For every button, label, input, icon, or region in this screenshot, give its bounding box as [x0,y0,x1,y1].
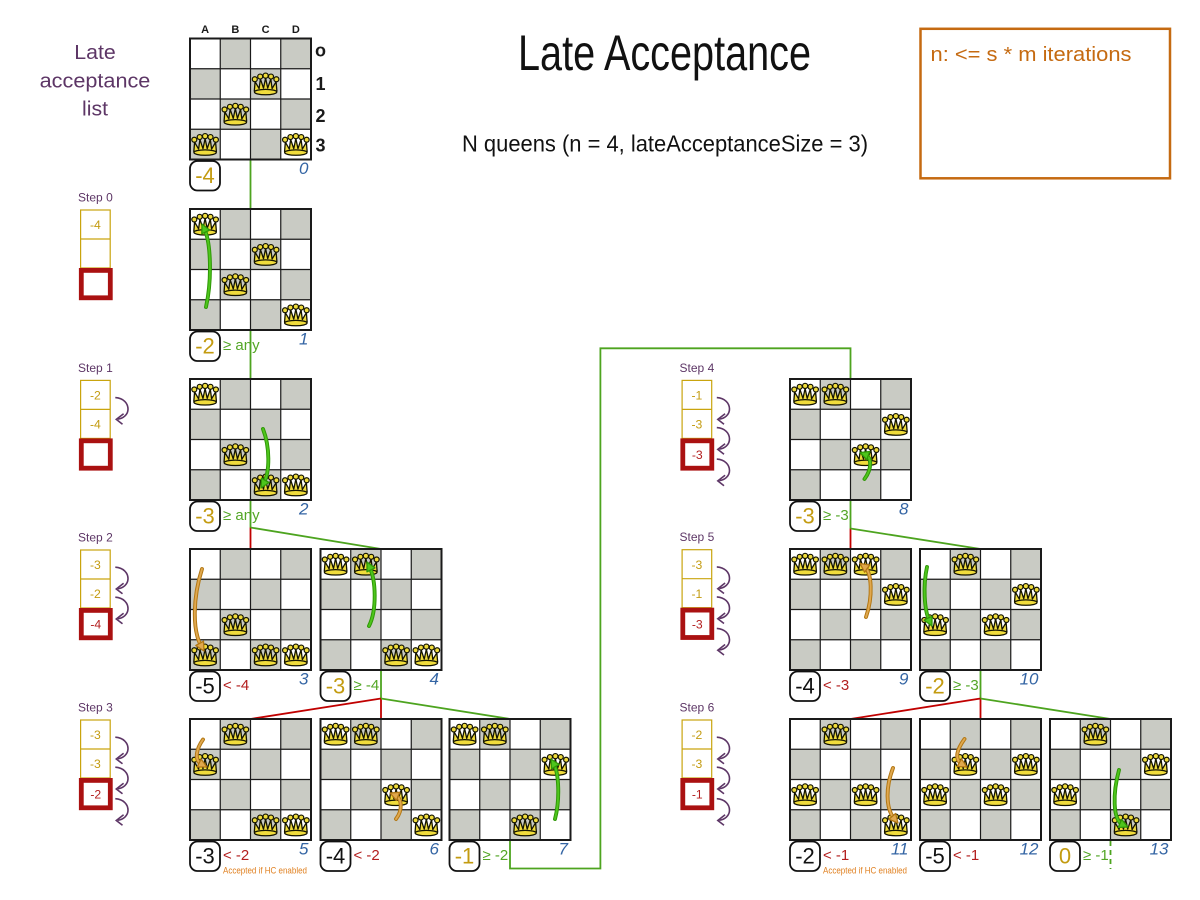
svg-text:< -4: < -4 [223,677,249,694]
svg-text:1: 1 [299,330,308,349]
svg-text:-2: -2 [90,788,101,802]
svg-text:-4: -4 [195,163,215,188]
svg-text:-3: -3 [692,617,703,631]
svg-text:< -1: < -1 [953,847,979,864]
svg-text:-3: -3 [195,843,215,868]
svg-text:11: 11 [891,840,909,859]
svg-text:6: 6 [430,840,440,859]
svg-text:0: 0 [1059,843,1071,868]
svg-text:-3: -3 [691,757,702,771]
svg-text:-2: -2 [925,673,945,698]
svg-text:Step 4: Step 4 [680,361,715,375]
svg-text:-3: -3 [90,757,101,771]
svg-text:≥ -2: ≥ -2 [483,847,509,864]
svg-text:4: 4 [430,670,439,689]
svg-text:5: 5 [299,840,309,859]
svg-text:-2: -2 [691,728,702,742]
svg-text:< -3: < -3 [823,677,849,694]
svg-text:-3: -3 [90,558,101,572]
svg-text:13: 13 [1150,840,1169,859]
svg-text:N queens (n = 4, lateAcceptanc: N queens (n = 4, lateAcceptanceSize = 3) [462,131,868,157]
svg-text:2: 2 [298,500,309,519]
svg-text:≥ -3: ≥ -3 [823,507,849,524]
svg-text:-5: -5 [925,843,945,868]
svg-text:Step 6: Step 6 [680,701,715,715]
svg-text:Accepted if HC enabled: Accepted if HC enabled [223,865,307,875]
svg-text:Lateacceptancelist: Lateacceptancelist [40,41,151,121]
svg-text:-4: -4 [90,618,101,632]
svg-text:Step 5: Step 5 [680,530,715,544]
svg-text:-5: -5 [195,673,215,698]
svg-text:Accepted if HC enabled: Accepted if HC enabled [823,865,907,875]
svg-text:< -2: < -2 [223,847,249,864]
svg-text:-3: -3 [692,448,703,462]
svg-text:-3: -3 [90,728,101,742]
svg-text:3: 3 [299,670,309,689]
svg-text:≥ -4: ≥ -4 [354,677,380,694]
svg-text:-2: -2 [795,843,815,868]
svg-text:-1: -1 [455,843,475,868]
svg-text:10: 10 [1020,670,1039,689]
svg-text:≥ any: ≥ any [223,337,260,354]
svg-text:o123: o123 [315,41,326,156]
svg-text:-3: -3 [195,503,215,528]
svg-text:-4: -4 [90,418,101,432]
svg-text:-1: -1 [691,389,702,403]
svg-text:-2: -2 [195,333,215,358]
svg-text:8: 8 [899,500,909,519]
svg-text:-3: -3 [691,418,702,432]
svg-text:< -1: < -1 [823,847,849,864]
svg-text:Step 2: Step 2 [78,531,113,545]
svg-text:< -2: < -2 [354,847,380,864]
svg-text:-1: -1 [692,788,703,802]
svg-text:-4: -4 [326,843,346,868]
svg-text:0: 0 [299,159,309,178]
svg-text:-3: -3 [326,673,346,698]
svg-text:-2: -2 [90,587,101,601]
svg-text:7: 7 [559,840,569,859]
svg-text:Late Acceptance: Late Acceptance [518,25,811,81]
svg-text:≥ any: ≥ any [223,507,260,524]
svg-text:Step 3: Step 3 [78,701,113,715]
svg-text:9: 9 [899,670,909,689]
svg-text:12: 12 [1020,840,1039,859]
svg-text:Step 1: Step 1 [78,361,113,375]
svg-text:≥ -1: ≥ -1 [1083,847,1109,864]
svg-text:ABCD: ABCD [201,24,300,36]
svg-text:-4: -4 [795,673,815,698]
svg-text:≥ -3: ≥ -3 [953,677,979,694]
svg-text:-2: -2 [90,389,101,403]
svg-text:-3: -3 [691,558,702,572]
svg-text:-3: -3 [795,503,815,528]
svg-text:Step 0: Step 0 [78,191,113,205]
svg-text:n: <= s * m iterations: n: <= s * m iterations [931,44,1132,66]
svg-text:-4: -4 [90,218,101,232]
svg-text:-1: -1 [691,587,702,601]
